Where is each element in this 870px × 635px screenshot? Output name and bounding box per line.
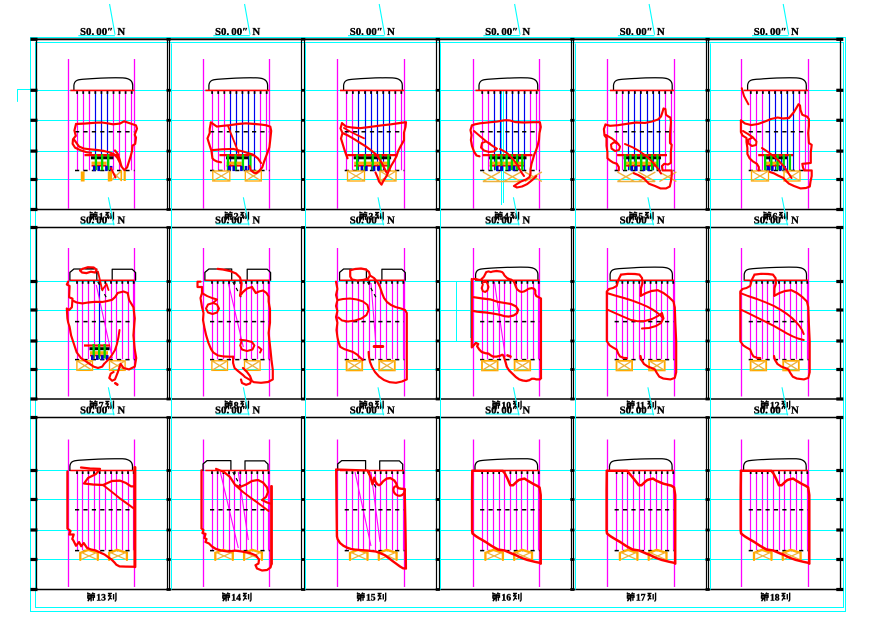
svg-text:N: N	[387, 26, 395, 38]
svg-text:N: N	[791, 404, 799, 416]
svg-text:N: N	[252, 26, 260, 38]
svg-text:N: N	[657, 214, 665, 226]
svg-text:N: N	[657, 404, 665, 416]
svg-text:N: N	[657, 26, 665, 38]
svg-text:N: N	[791, 26, 799, 38]
svg-text:N: N	[522, 404, 530, 416]
svg-text:16: 16	[501, 593, 511, 604]
svg-text:N: N	[252, 404, 260, 416]
svg-text:N: N	[117, 214, 125, 226]
svg-text:N: N	[522, 214, 530, 226]
svg-text:N: N	[522, 26, 530, 38]
svg-text:13: 13	[96, 593, 106, 604]
svg-text:17: 17	[636, 593, 646, 604]
svg-text:N: N	[117, 404, 125, 416]
svg-text:18: 18	[770, 593, 780, 604]
svg-text:15: 15	[366, 593, 376, 604]
svg-text:N: N	[387, 404, 395, 416]
svg-text:N: N	[252, 214, 260, 226]
svg-text:14: 14	[231, 593, 241, 604]
svg-text:N: N	[791, 214, 799, 226]
svg-text:N: N	[117, 26, 125, 38]
svg-text:N: N	[387, 214, 395, 226]
